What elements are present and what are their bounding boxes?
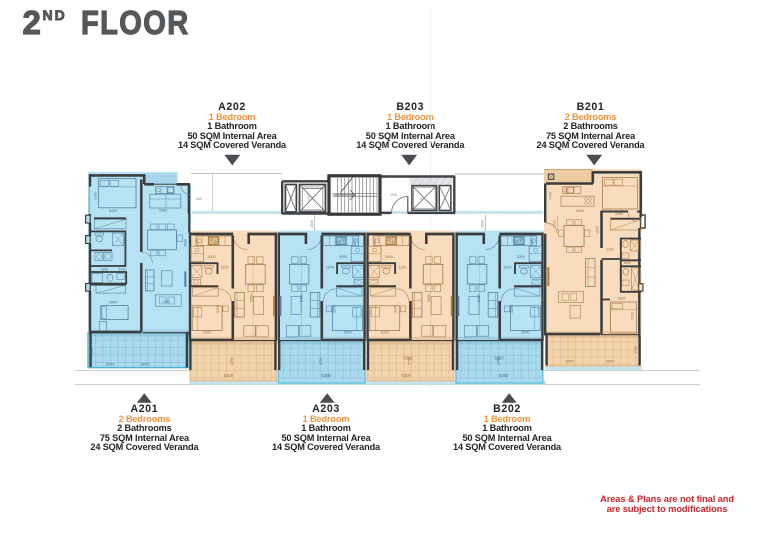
svg-text:800: 800 [531, 238, 535, 244]
svg-text:1530: 1530 [481, 220, 485, 228]
svg-text:5450: 5450 [427, 294, 431, 302]
svg-text:3200: 3200 [510, 305, 514, 313]
svg-text:2160: 2160 [93, 192, 97, 200]
svg-text:3100: 3100 [631, 312, 635, 320]
svg-text:3250: 3250 [566, 358, 576, 363]
svg-text:6300: 6300 [401, 373, 411, 378]
svg-text:3000: 3000 [385, 255, 393, 259]
svg-text:5450: 5450 [299, 294, 303, 302]
svg-text:3000: 3000 [203, 331, 211, 335]
svg-text:1100: 1100 [606, 248, 613, 252]
svg-text:3000: 3000 [521, 331, 529, 335]
svg-text:3000: 3000 [517, 255, 525, 259]
svg-text:6300: 6300 [494, 356, 504, 361]
svg-text:2700: 2700 [634, 346, 638, 354]
svg-text:3200: 3200 [216, 305, 220, 313]
svg-text:2900: 2900 [390, 193, 398, 197]
svg-text:800: 800 [196, 238, 200, 244]
svg-text:2750: 2750 [319, 357, 323, 365]
svg-text:5000: 5000 [618, 296, 626, 300]
svg-text:3250: 3250 [106, 362, 116, 367]
svg-text:1830: 1830 [101, 267, 109, 271]
svg-text:1400: 1400 [162, 300, 170, 304]
svg-text:3250: 3250 [141, 362, 151, 367]
svg-text:6300: 6300 [499, 373, 509, 378]
svg-text:1600: 1600 [623, 261, 631, 265]
svg-text:3400: 3400 [109, 209, 117, 213]
svg-text:1530: 1530 [310, 220, 314, 228]
svg-text:5450: 5450 [477, 294, 481, 302]
svg-text:3000: 3000 [109, 301, 117, 305]
svg-text:2000: 2000 [290, 194, 294, 202]
svg-text:9000: 9000 [183, 239, 187, 247]
svg-text:3000: 3000 [380, 331, 388, 335]
svg-text:1190: 1190 [118, 267, 125, 271]
svg-text:2400: 2400 [159, 209, 167, 213]
svg-text:1600: 1600 [596, 226, 600, 234]
svg-text:3400: 3400 [576, 209, 584, 213]
svg-text:3200: 3200 [394, 305, 398, 313]
svg-text:5450: 5450 [249, 294, 253, 302]
svg-text:3000: 3000 [207, 255, 215, 259]
svg-text:3100: 3100 [549, 192, 553, 200]
svg-text:2750: 2750 [90, 348, 94, 356]
svg-text:1100: 1100 [221, 265, 229, 269]
svg-text:2750: 2750 [230, 357, 234, 365]
svg-text:800: 800 [373, 238, 377, 244]
svg-text:800: 800 [353, 238, 357, 244]
svg-text:1100: 1100 [326, 265, 334, 269]
svg-text:6300: 6300 [403, 356, 413, 361]
svg-text:1100: 1100 [398, 265, 406, 269]
svg-text:3000: 3000 [343, 331, 351, 335]
svg-text:6300: 6300 [321, 373, 331, 378]
svg-text:6300: 6300 [224, 373, 234, 378]
svg-text:3250: 3250 [606, 358, 616, 363]
svg-text:3200: 3200 [333, 305, 337, 313]
svg-text:2000: 2000 [307, 194, 311, 202]
svg-text:1100: 1100 [504, 265, 512, 269]
svg-text:2400: 2400 [615, 212, 623, 216]
svg-text:3000: 3000 [339, 255, 347, 259]
